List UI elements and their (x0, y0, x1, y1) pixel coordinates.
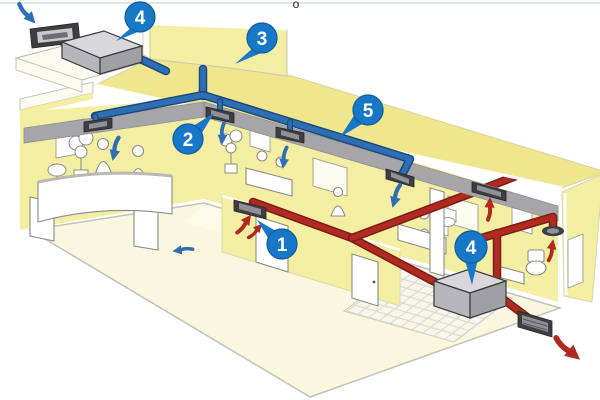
ventilation-diagram: o (0, 0, 600, 400)
svg-text:3: 3 (257, 29, 268, 50)
svg-text:1: 1 (277, 235, 288, 256)
svg-text:4: 4 (466, 238, 477, 259)
top-rule (0, 2, 600, 4)
svg-text:5: 5 (363, 101, 374, 122)
svg-text:4: 4 (135, 8, 146, 29)
right-wall-door (568, 234, 583, 288)
svg-text:2: 2 (183, 130, 194, 151)
stray-glyph: o (293, 0, 300, 11)
door-corridor-2 (352, 254, 378, 306)
toilet (526, 250, 546, 275)
extract-round-valve (542, 226, 564, 236)
